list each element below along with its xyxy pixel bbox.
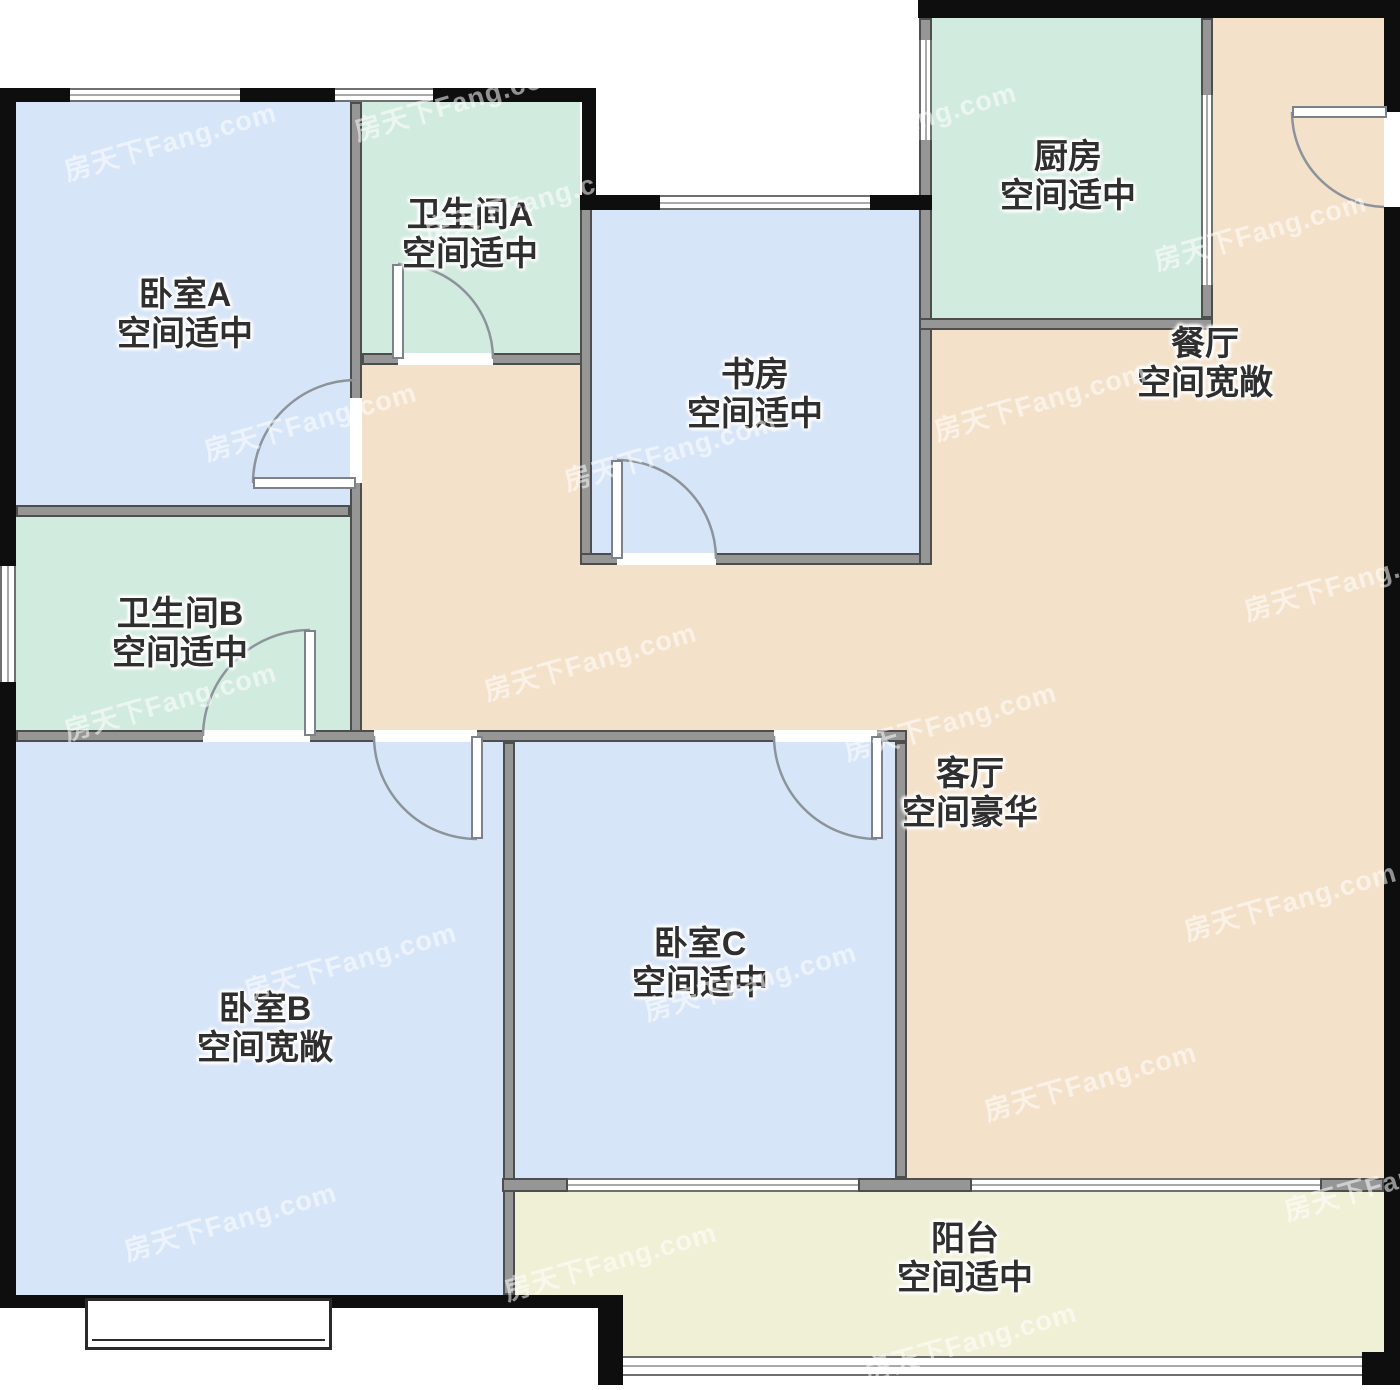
room-label-bathroom-b: 卫生间B空间适中 (112, 595, 248, 673)
room-status: 空间宽敞 (197, 1029, 333, 1068)
door-leaf-entry (1292, 106, 1387, 118)
door-leaf-bedroom-b (471, 736, 483, 839)
ext-wall-top-2 (240, 88, 335, 102)
ext-wall-left (0, 88, 16, 1308)
window-study (660, 195, 870, 210)
window-balcony-top-left (568, 1178, 858, 1192)
opening-bathroom-b (203, 730, 310, 742)
room-label-bedroom-b: 卧室B空间宽敞 (197, 990, 333, 1068)
room-name: 卧室A (117, 276, 253, 315)
ext-wall-top-3 (433, 88, 596, 102)
wall-balcony-stub-right (1320, 1178, 1384, 1192)
wall-balcony-stub-mid (858, 1178, 972, 1192)
door-leaf-bathroom-b (304, 630, 316, 736)
wall-bedroom-a-bottom (16, 505, 350, 517)
room-name: 餐厅 (1137, 325, 1273, 364)
wall-bedroom-b-c (503, 742, 515, 1295)
room-name: 厨房 (1000, 138, 1136, 177)
room-status: 空间适中 (897, 1259, 1033, 1298)
opening-bedroom-b (374, 730, 477, 742)
opening-study (617, 553, 716, 565)
room-name: 卫生间A (402, 196, 538, 235)
room-name: 阳台 (897, 1220, 1033, 1259)
ext-wall-study-top-r (870, 195, 932, 210)
room-name: 卧室B (197, 990, 333, 1029)
room-label-study: 书房空间适中 (687, 356, 823, 434)
opening-entry (1384, 112, 1400, 207)
window-kitchen-left (919, 40, 932, 140)
room-status: 空间适中 (687, 395, 823, 434)
door-leaf-study (611, 460, 623, 559)
room-label-bedroom-a: 卧室A空间适中 (117, 276, 253, 354)
room-name: 卫生间B (112, 595, 248, 634)
wall-balcony-stub-left (502, 1178, 568, 1192)
window-balcony-bottom (623, 1356, 1362, 1376)
room-label-bedroom-c: 卧室C空间适中 (632, 925, 768, 1003)
room-label-kitchen: 厨房空间适中 (1000, 138, 1136, 216)
ext-wall-notch-left (582, 88, 596, 210)
room-status: 空间豪华 (902, 794, 1038, 833)
room-label-balcony: 阳台空间适中 (897, 1220, 1033, 1298)
floor-plan: 卧室A空间适中卫生间A空间适中书房空间适中厨房空间适中餐厅空间宽敞卫生间B空间适… (0, 0, 1400, 1390)
door-leaf-bedroom-a (253, 477, 356, 489)
room-label-bathroom-a: 卫生间A空间适中 (402, 196, 538, 274)
room-status: 空间适中 (112, 634, 248, 673)
window-bedroom-a-1 (70, 88, 240, 102)
bay-window-bedroom-b (85, 1298, 332, 1350)
window-bedroom-a-2 (335, 88, 433, 102)
ext-wall-balcony-left (598, 1295, 623, 1385)
room-status: 空间适中 (402, 235, 538, 274)
room-label-living: 客厅空间豪华 (902, 755, 1038, 833)
room-status: 空间适中 (1000, 177, 1136, 216)
opening-bathroom-a (398, 353, 493, 365)
window-bathroom-b (0, 566, 16, 682)
room-name: 客厅 (902, 755, 1038, 794)
opening-bedroom-c (774, 730, 877, 742)
ext-wall-top-right (918, 0, 1400, 18)
door-leaf-bathroom-a (392, 264, 404, 359)
wall-study-left (580, 195, 592, 565)
ext-wall-study-top-l (580, 195, 660, 210)
room-status: 空间宽敞 (1137, 364, 1273, 403)
room-name: 书房 (687, 356, 823, 395)
ext-wall-balcony-br (1362, 1352, 1400, 1385)
window-balcony-top-right (972, 1178, 1320, 1192)
ext-wall-right (1384, 0, 1400, 1385)
room-label-dining: 餐厅空间宽敞 (1137, 325, 1273, 403)
door-leaf-bedroom-c (871, 736, 883, 839)
room-name: 卧室C (632, 925, 768, 964)
room-status: 空间适中 (632, 964, 768, 1003)
dining-upper-fill (1213, 18, 1384, 330)
balcony-fill-lower (623, 1295, 1384, 1356)
room-status: 空间适中 (117, 315, 253, 354)
opening-bedroom-a (350, 398, 362, 483)
slider-kitchen-dining (1201, 95, 1213, 285)
